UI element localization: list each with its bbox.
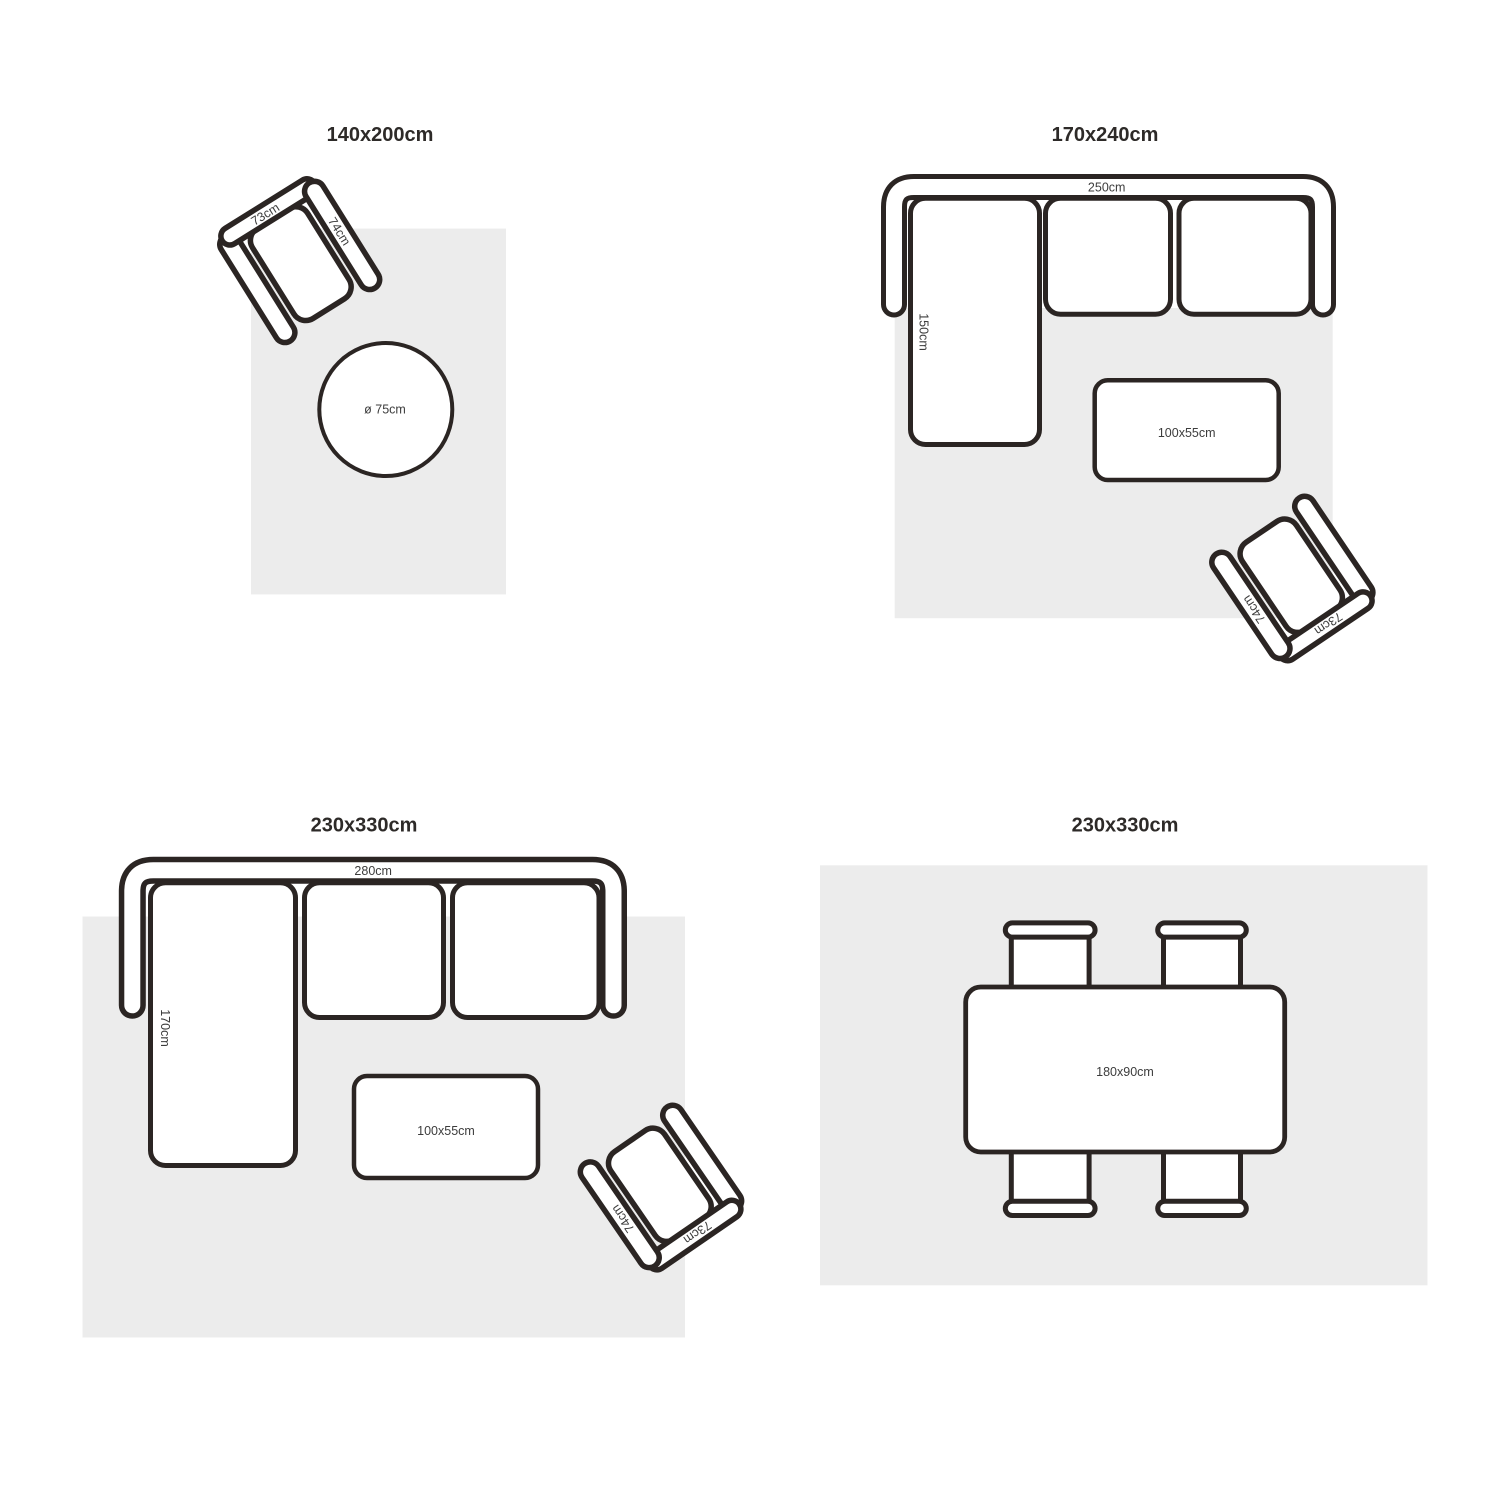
svg-text:100x55cm: 100x55cm (1158, 426, 1216, 440)
svg-text:100x55cm: 100x55cm (417, 1124, 475, 1138)
svg-text:170x240cm: 170x240cm (1052, 124, 1159, 146)
svg-text:180x90cm: 180x90cm (1096, 1065, 1154, 1079)
svg-text:170cm: 170cm (158, 1009, 172, 1047)
svg-text:230x330cm: 230x330cm (1072, 815, 1179, 837)
svg-text:230x330cm: 230x330cm (311, 815, 418, 837)
svg-text:ø 75cm: ø 75cm (364, 403, 406, 417)
svg-text:150cm: 150cm (917, 313, 931, 351)
svg-text:250cm: 250cm (1088, 181, 1126, 195)
svg-text:140x200cm: 140x200cm (327, 124, 434, 146)
svg-text:280cm: 280cm (354, 864, 392, 878)
